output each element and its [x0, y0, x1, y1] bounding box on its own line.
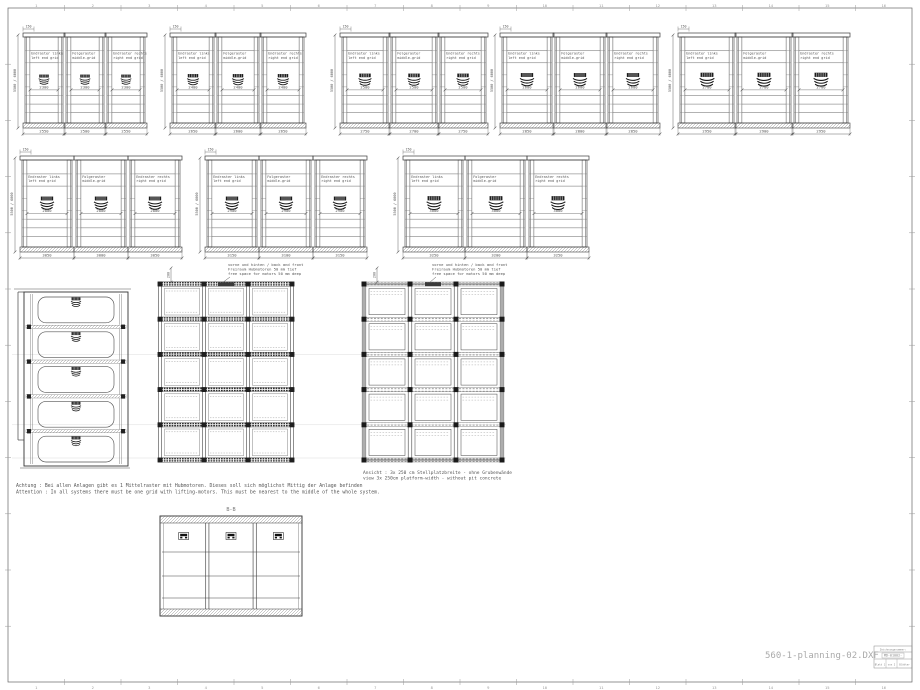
- panel-label-en: middle-grid: [72, 56, 95, 60]
- elevation-panel: Folgerastermiddle-grid30003200: [464, 156, 529, 260]
- section-label: B-B: [226, 507, 235, 513]
- grid-width-dim: 2550: [121, 129, 131, 134]
- platform-dim: 2300: [121, 84, 131, 89]
- car-lift-icon: [71, 332, 81, 341]
- svg-text:Blätter: Blätter: [899, 663, 910, 667]
- zone-number-bottom: 16: [881, 685, 886, 690]
- svg-text:Zeichnungsnummer:: Zeichnungsnummer:: [880, 648, 907, 652]
- car-lift-icon: [71, 402, 81, 411]
- svg-text:von 2: von 2: [888, 663, 896, 667]
- base-hatch: [23, 123, 65, 128]
- elevation-panel: Endraster rechtsright end grid24002650: [259, 33, 308, 136]
- zone-number-bottom: 2: [92, 685, 94, 690]
- depth-dim-1: 200: [167, 272, 171, 278]
- car-lift-icon: [71, 437, 81, 446]
- motor-icon: [218, 282, 234, 286]
- grid-width-dim: 3150: [335, 253, 345, 258]
- elevation-group: Endraster linksleft end grid25002750Folg…: [330, 25, 489, 136]
- base-hatch: [313, 247, 367, 252]
- zone-number-top: 14: [768, 3, 773, 8]
- height-dim: 5500 / 6000: [160, 69, 164, 92]
- title-block-text: Zeichnungsnummer: MD-01002- Blatt 1 von …: [875, 648, 911, 667]
- base-hatch: [215, 123, 261, 128]
- platform-dim: 2400: [188, 84, 198, 89]
- elevation-panel: Endraster rechtsright end grid23002550: [104, 33, 149, 136]
- grid-width-dim: 3250: [429, 253, 439, 258]
- elevation-panel: Endraster linksleft end grid26002850: [499, 33, 556, 136]
- platform-dim: 2800: [42, 208, 52, 213]
- base-hatch: [340, 123, 390, 128]
- grid-width-dim: 3200: [491, 253, 501, 258]
- attention-note-en: Attention : In all systems there must be…: [16, 490, 380, 496]
- platform-dim: 2500: [409, 84, 419, 89]
- grid-width-dim: 3050: [42, 253, 52, 258]
- elevation-panel: Endraster linksleft end grid28003050: [19, 156, 76, 260]
- platform-dim: 3000: [491, 208, 501, 213]
- car-lift-icon: [187, 74, 199, 85]
- zone-number-bottom: 12: [655, 685, 660, 690]
- grid-width-dim: 2650: [278, 129, 288, 134]
- car-front-icon: [273, 533, 283, 540]
- car-front-icon: [179, 533, 189, 540]
- base-hatch: [735, 123, 793, 128]
- car-lift-icon: [121, 75, 132, 85]
- grid-width-dim: 2950: [816, 129, 826, 134]
- car-lift-icon: [80, 75, 91, 85]
- top-dim: 150: [23, 148, 29, 152]
- top-dim: 150: [173, 25, 179, 29]
- car-outline: [38, 401, 114, 427]
- svg-text:MD-01002-: MD-01002-: [884, 654, 902, 658]
- top-dim: 150: [26, 25, 32, 29]
- zone-number-bottom: 10: [542, 685, 547, 690]
- platform-dim: 2300: [39, 84, 49, 89]
- platform-dim: 2600: [575, 84, 585, 89]
- zone-number-top: 2: [92, 3, 94, 8]
- elevation-panel: Endraster rechtsright end grid30003250: [526, 156, 591, 260]
- panel-label-en: right end grid: [614, 56, 644, 60]
- platform-dim: 2600: [628, 84, 638, 89]
- zone-number-top: 5: [261, 3, 263, 8]
- platform-dim: 2800: [96, 208, 106, 213]
- zone-number-top: 3: [148, 3, 150, 8]
- panel-label-en: right end grid: [535, 179, 565, 183]
- grid-width-dim: 2850: [522, 129, 532, 134]
- grid-width-dim: 2950: [702, 129, 712, 134]
- svg-text:Blatt 1: Blatt 1: [875, 663, 886, 667]
- platform-dim: 2900: [227, 208, 237, 213]
- grid-width-dim: 2700: [409, 129, 419, 134]
- zone-number-bottom: 14: [768, 685, 773, 690]
- height-dim: 5500 / 6000: [668, 69, 672, 92]
- panel-label-en: right end grid: [446, 56, 476, 60]
- plan-view-open: [362, 267, 505, 463]
- height-dim: 5500 / 6000: [10, 192, 14, 215]
- zone-number-bottom: 5: [261, 685, 263, 690]
- elevation-panel: Folgerastermiddle-grid29003100: [258, 156, 315, 260]
- zone-number-top: 7: [374, 3, 376, 8]
- top-dim: 150: [503, 25, 509, 29]
- base-hatch: [205, 247, 259, 252]
- platform-dim: 2700: [759, 84, 769, 89]
- grid-width-dim: 2850: [628, 129, 638, 134]
- grid-width-dim: 2550: [39, 129, 49, 134]
- zone-number-top: 4: [205, 3, 208, 8]
- grid-width-dim: 2800: [575, 129, 585, 134]
- elevation-panel: Endraster linksleft end grid30003250: [402, 156, 467, 260]
- elevation-group: Endraster linksleft end grid24002650Folg…: [160, 25, 307, 136]
- base-hatch: [527, 247, 589, 252]
- view-caption-de: Ansicht : 3x 250 cm Stellplatzbreite - o…: [363, 470, 512, 476]
- platform-dim: 2800: [150, 208, 160, 213]
- grid-width-dim: 2750: [360, 129, 370, 134]
- elevation-panel: Endraster rechtsright end grid28003050: [127, 156, 184, 260]
- height-dim: 5500 / 6000: [195, 192, 199, 215]
- drawing-canvas[interactable]: 1122334455667788991010111112121313141415…: [0, 0, 920, 690]
- panel-label-en: left end grid: [178, 56, 205, 60]
- zone-number-top: 6: [318, 3, 321, 8]
- elevation-group: Endraster linksleft end grid29003150Folg…: [195, 148, 368, 260]
- base-hatch: [259, 247, 313, 252]
- base-hatch: [553, 123, 607, 128]
- panel-label-en: middle-grid: [267, 179, 290, 183]
- grid-width-dim: 2650: [188, 129, 198, 134]
- height-dim: 5500 / 6000: [330, 69, 334, 92]
- alignment-lines: [12, 354, 506, 458]
- elevation-panel: Endraster rechtsright end grid25002750: [437, 33, 490, 136]
- zone-number-bottom: 6: [318, 685, 321, 690]
- car-lift-icon: [277, 74, 289, 85]
- elevation-panel: Folgerastermiddle-grid26002800: [552, 33, 609, 136]
- platform-dim: 2600: [522, 84, 532, 89]
- filename-text: 560-1-planning-02.DXF: [765, 651, 879, 661]
- platform-dim: 2900: [335, 208, 345, 213]
- zone-number-bottom: 7: [374, 685, 376, 690]
- base-hatch: [678, 123, 736, 128]
- zone-number-top: 8: [431, 3, 434, 8]
- grid-width-dim: 2900: [759, 129, 769, 134]
- panel-label-en: middle-grid: [82, 179, 105, 183]
- elevation-group: Endraster linksleft end grid30003250Folg…: [393, 148, 590, 260]
- drawing-sheet: 1122334455667788991010111112121313141415…: [0, 0, 920, 690]
- depth-dim-2: 200: [373, 272, 377, 278]
- platform-dim: 2500: [360, 84, 370, 89]
- elevation-group: Endraster linksleft end grid28003050Folg…: [10, 148, 183, 260]
- grid-width-dim: 3000: [96, 253, 106, 258]
- platform-dim: 2400: [233, 84, 243, 89]
- base-hatch: [170, 123, 216, 128]
- panel-label-en: left end grid: [213, 179, 240, 183]
- zone-number-top: 12: [655, 3, 660, 8]
- elevation-panel: Endraster rechtsright end grid29003150: [312, 156, 369, 260]
- panel-label-en: left end grid: [28, 179, 55, 183]
- elevation-panel: Endraster rechtsright end grid26002850: [605, 33, 662, 136]
- platform-dim: 3000: [429, 208, 439, 213]
- grid-width-dim: 2500: [80, 129, 90, 134]
- elevation-group: Endraster linksleft end grid26002850Folg…: [490, 25, 661, 136]
- platform-dim: 2400: [278, 84, 288, 89]
- elevation-panel: Folgerastermiddle-grid24002600: [214, 33, 263, 136]
- elevation-panel: Folgerastermiddle-grid28003000: [73, 156, 130, 260]
- car-front-icon: [226, 533, 236, 540]
- section-bb: [160, 516, 302, 616]
- top-dim: 150: [681, 25, 687, 29]
- car-lift-icon: [71, 298, 81, 307]
- panel-label-en: left end grid: [686, 56, 713, 60]
- base-hatch: [465, 247, 527, 252]
- elevation-panel: Endraster linksleft end grid23002550: [22, 33, 67, 136]
- panel-label-en: left end grid: [508, 56, 535, 60]
- car-lift-icon: [232, 74, 244, 85]
- zone-number-bottom: 8: [431, 685, 434, 690]
- base-hatch: [438, 123, 488, 128]
- panel-label-en: right end grid: [136, 179, 166, 183]
- height-dim: 5500 / 6000: [13, 69, 17, 92]
- car-outline: [38, 297, 114, 323]
- elevation-panel: Folgerastermiddle-grid27002900: [734, 33, 795, 136]
- panel-label-en: right end grid: [113, 56, 143, 60]
- base-hatch: [128, 247, 182, 252]
- elevation-group: Endraster linksleft end grid27002950Folg…: [668, 25, 851, 136]
- elevation-panel: Endraster linksleft end grid29003150: [204, 156, 261, 260]
- zone-number-bottom: 3: [148, 685, 150, 690]
- platform-dim: 2500: [458, 84, 468, 89]
- base-hatch: [20, 247, 74, 252]
- base-hatch: [792, 123, 850, 128]
- base-hatch: [500, 123, 554, 128]
- base-hatch: [260, 123, 306, 128]
- platform-dim: 2300: [80, 84, 90, 89]
- height-dim: 5500 / 6000: [490, 69, 494, 92]
- attention-note-de: Achtung : Bei allen Anlagen gibt es 1 Mi…: [16, 483, 363, 489]
- zone-number-bottom: 9: [487, 685, 490, 690]
- top-dim: 150: [406, 148, 412, 152]
- base-hatch: [74, 247, 128, 252]
- platform-dim: 3000: [553, 208, 563, 213]
- panel-label-en: middle-grid: [561, 56, 584, 60]
- platform-dim: 2700: [816, 84, 826, 89]
- zone-number-bottom: 4: [205, 685, 208, 690]
- svg-text:free space for motors 50 mm d: free space for motors 50 mm deep: [432, 271, 506, 276]
- zone-number-top: 16: [881, 3, 886, 8]
- svg-text:free space for motors 50 mm d: free space for motors 50 mm deep: [228, 271, 302, 276]
- height-dim: 5500 / 6000: [393, 192, 397, 215]
- elevation-panel: Endraster rechtsright end grid27002950: [791, 33, 852, 136]
- sheet-border: 1122334455667788991010111112121313141415…: [5, 3, 915, 690]
- panel-label-en: middle-grid: [223, 56, 246, 60]
- base-hatch: [606, 123, 660, 128]
- base-hatch: [389, 123, 439, 128]
- elevation-group: Endraster linksleft end grid23002550Folg…: [13, 25, 148, 136]
- motor-note-2: vorne und hinten / back and front Freira…: [432, 262, 507, 276]
- zone-number-top: 11: [599, 3, 604, 8]
- motor-note-1: vorne und hinten / back and front Freira…: [228, 262, 303, 276]
- panel-label-en: middle-grid: [743, 56, 766, 60]
- grid-width-dim: 3050: [150, 253, 160, 258]
- panel-label-en: middle-grid: [397, 56, 420, 60]
- panel-label-en: right end grid: [800, 56, 830, 60]
- panel-label-en: left end grid: [31, 56, 58, 60]
- platform-dim: 2700: [702, 84, 712, 89]
- base-hatch: [105, 123, 147, 128]
- grid-width-dim: 3150: [227, 253, 237, 258]
- car-outline: [38, 332, 114, 358]
- panel-label-en: right end grid: [321, 179, 351, 183]
- grid-width-dim: 3250: [553, 253, 563, 258]
- plan-view-grid: [158, 267, 295, 463]
- elevation-panel: Endraster linksleft end grid24002650: [169, 33, 218, 136]
- zone-number-bottom: 11: [599, 685, 604, 690]
- zone-number-top: 1: [35, 3, 38, 8]
- panel-label-en: left end grid: [411, 179, 438, 183]
- elevation-panel: Endraster linksleft end grid25002750: [339, 33, 392, 136]
- grid-width-dim: 3100: [281, 253, 291, 258]
- motor-icon: [425, 282, 441, 286]
- panel-label-en: left end grid: [348, 56, 375, 60]
- zone-number-bottom: 1: [35, 685, 38, 690]
- zone-number-top: 10: [542, 3, 547, 8]
- car-lift-icon: [71, 367, 81, 376]
- grid-width-dim: 2600: [233, 129, 243, 134]
- top-dim: 150: [343, 25, 349, 29]
- zone-number-top: 13: [712, 3, 717, 8]
- zone-number-top: 15: [825, 3, 830, 8]
- elevation-panel: Folgerastermiddle-grid23002500: [63, 33, 108, 136]
- elevation-panel: Endraster linksleft end grid27002950: [677, 33, 738, 136]
- base-hatch: [403, 247, 465, 252]
- view-caption-en: view 3x 250cm platform-width - without p…: [363, 476, 501, 482]
- zone-number-bottom: 15: [825, 685, 830, 690]
- plan-view-left: [14, 289, 131, 468]
- platform-dim: 2900: [281, 208, 291, 213]
- elevation-panel: Folgerastermiddle-grid25002700: [388, 33, 441, 136]
- grid-width-dim: 2750: [458, 129, 468, 134]
- base-hatch: [64, 123, 106, 128]
- top-dim: 150: [208, 148, 214, 152]
- car-outline: [38, 367, 114, 393]
- zone-number-top: 9: [487, 3, 490, 8]
- panel-label-en: right end grid: [268, 56, 298, 60]
- car-lift-icon: [39, 75, 50, 85]
- zone-number-bottom: 13: [712, 685, 717, 690]
- panel-label-en: middle-grid: [473, 179, 496, 183]
